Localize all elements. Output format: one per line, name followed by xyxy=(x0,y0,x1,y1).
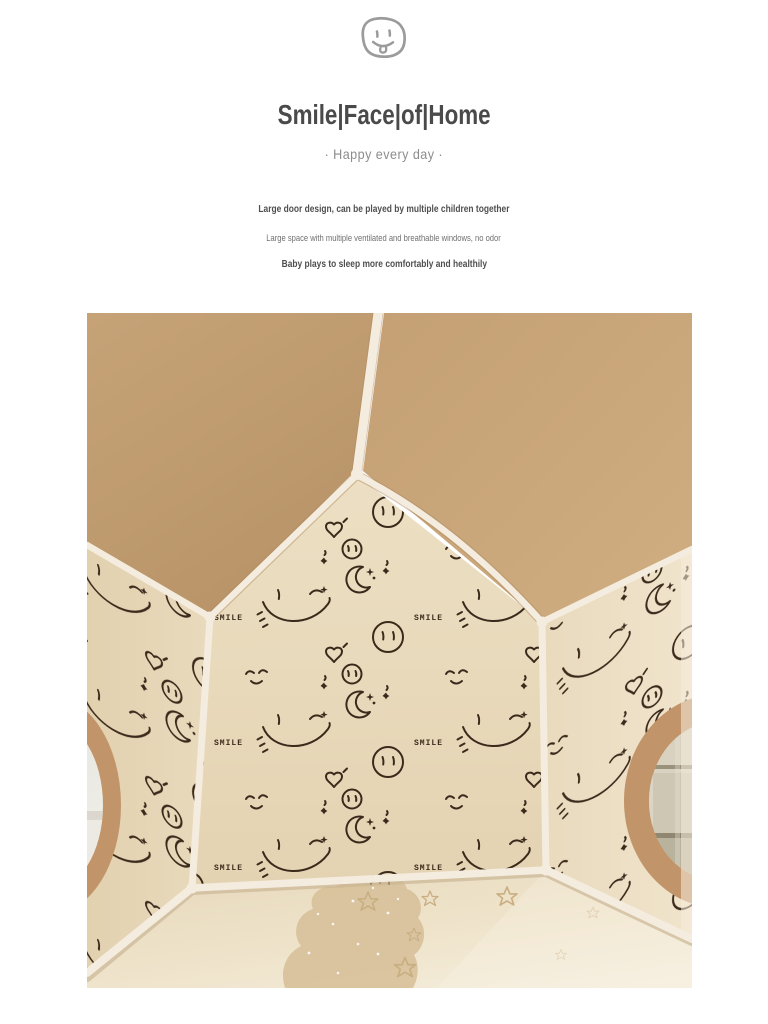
feature-line-1: Large door design, can be played by mult… xyxy=(0,203,768,215)
product-page: { "page": { "background": "#ffffff" }, "… xyxy=(0,0,768,1024)
tongue-out-smiley-icon xyxy=(359,15,409,63)
feature-line-2: Large space with multiple ventilated and… xyxy=(0,233,768,244)
page-title-text: Smile|Face|of|Home xyxy=(278,100,491,131)
page-subtitle: · Happy every day · xyxy=(0,146,768,162)
feature-line-3: Baby plays to sleep more comfortably and… xyxy=(0,258,768,270)
product-photo: SMILE xyxy=(87,313,692,988)
play-house-interior-scene: SMILE xyxy=(87,313,692,988)
page-title: Smile|Face|of|Home xyxy=(0,100,768,131)
